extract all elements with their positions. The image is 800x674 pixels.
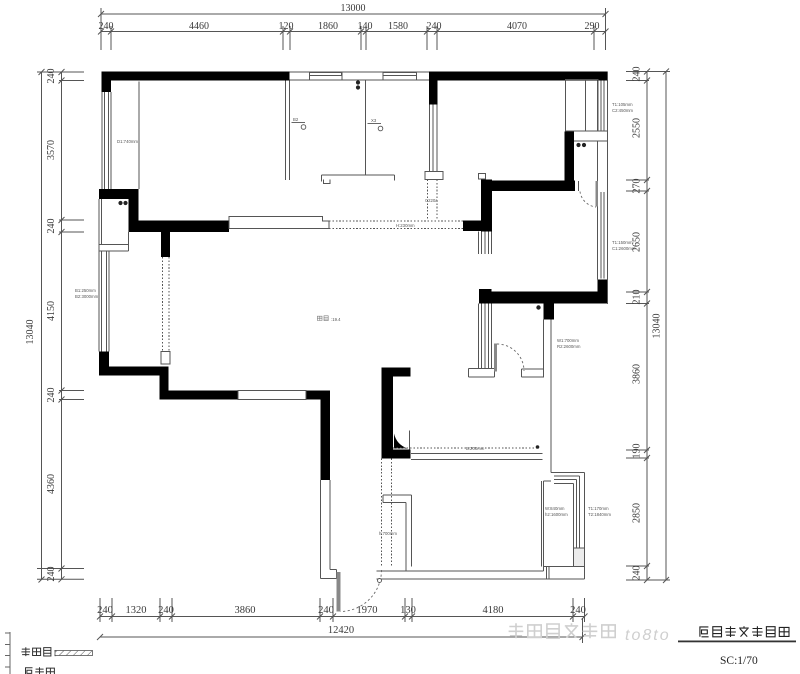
svg-text:240: 240 (427, 21, 442, 32)
svg-text:W1:700mm: W1:700mm (557, 338, 579, 343)
svg-text:B:200mm: B:200mm (466, 446, 485, 451)
svg-text:240: 240 (46, 219, 57, 234)
svg-text:240: 240 (570, 605, 586, 616)
svg-text:240: 240 (97, 605, 113, 616)
svg-text:2850: 2850 (632, 503, 643, 523)
svg-text:140: 140 (358, 21, 373, 32)
svg-text:290: 290 (585, 21, 600, 32)
svg-text:1860: 1860 (318, 21, 338, 32)
svg-text:T1:105mm: T1:105mm (612, 102, 633, 107)
svg-text:1970: 1970 (357, 605, 378, 616)
svg-text:1320: 1320 (126, 605, 147, 616)
svg-text:12420: 12420 (328, 625, 354, 636)
svg-text:h:700mm: h:700mm (379, 531, 397, 536)
svg-text:3860: 3860 (235, 605, 256, 616)
svg-text:240: 240 (158, 605, 174, 616)
svg-text:D1:740mm: D1:740mm (117, 139, 138, 144)
svg-text:13040: 13040 (652, 314, 663, 339)
svg-text:SC:1/70: SC:1/70 (720, 655, 758, 667)
svg-text:240: 240 (632, 566, 643, 581)
svg-text:120: 120 (279, 21, 294, 32)
svg-text:R2:2600mm: R2:2600mm (557, 344, 581, 349)
svg-text:X3: X3 (371, 118, 377, 123)
svg-text:270: 270 (632, 179, 643, 194)
svg-text::19.4: :19.4 (331, 317, 341, 322)
svg-text:H:230mm: H:230mm (396, 223, 415, 228)
svg-text:13000: 13000 (341, 3, 366, 14)
svg-text:240: 240 (318, 605, 334, 616)
svg-text:240: 240 (99, 21, 114, 32)
svg-text:4070: 4070 (507, 21, 527, 32)
svg-text:C1:2600mm: C1:2600mm (612, 246, 636, 251)
svg-text:B2:3000mm: B2:3000mm (75, 294, 99, 299)
svg-text:h2:1600mm: h2:1600mm (545, 512, 568, 517)
svg-text:1580: 1580 (388, 21, 408, 32)
svg-text:4150: 4150 (46, 301, 57, 321)
svg-text:T2:1840mm: T2:1840mm (588, 512, 611, 517)
svg-text:3570: 3570 (46, 140, 57, 160)
svg-text:2550: 2550 (632, 118, 643, 138)
svg-text:130: 130 (400, 605, 416, 616)
svg-text:4180: 4180 (483, 605, 504, 616)
svg-text:240: 240 (46, 69, 57, 84)
svg-text:240: 240 (632, 67, 643, 82)
svg-text:C2:450mm: C2:450mm (612, 108, 633, 113)
svg-text:240: 240 (46, 388, 57, 403)
svg-text:T1:150mm: T1:150mm (612, 240, 633, 245)
svg-text:T1:170mm: T1:170mm (588, 506, 609, 511)
svg-text:to8to: to8to (625, 627, 671, 644)
svg-text:13040: 13040 (25, 320, 36, 345)
svg-text:C220a: C220a (425, 198, 438, 203)
svg-text:B2: B2 (293, 117, 299, 122)
svg-text:240: 240 (46, 567, 57, 582)
svg-text:W:840mm: W:840mm (545, 506, 565, 511)
svg-text:210: 210 (632, 290, 643, 305)
svg-text:4460: 4460 (189, 21, 209, 32)
svg-text:3860: 3860 (632, 364, 643, 384)
svg-text:B1:250mm: B1:250mm (75, 288, 96, 293)
svg-text:4360: 4360 (46, 474, 57, 494)
svg-text:190: 190 (632, 444, 643, 459)
